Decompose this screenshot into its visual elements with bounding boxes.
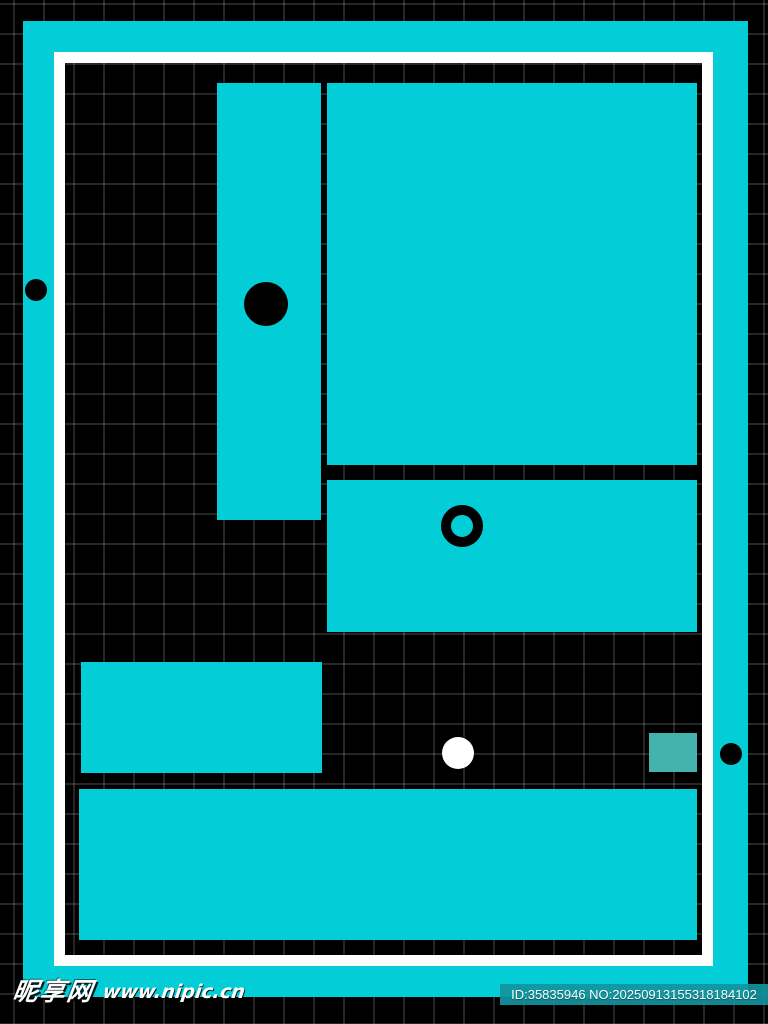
image-id-bar: ID:35835946 NO:20250913155318184102	[500, 984, 768, 1005]
artboard: 昵享网 www.nipic.cn ID:35835946 NO:20250913…	[0, 0, 768, 1024]
mid-rect	[327, 480, 697, 632]
bottom-wide-rect	[79, 789, 697, 940]
right-edge-black-dot	[720, 743, 742, 765]
watermark-site-url: www.nipic.cn	[101, 983, 246, 1004]
teal-square	[649, 733, 697, 772]
watermark: 昵享网 www.nipic.cn	[11, 979, 247, 1004]
black-dot-on-tall-rect	[244, 282, 288, 326]
black-ring-on-mid-rect	[441, 505, 483, 547]
watermark-site-name: 昵享网	[11, 979, 96, 1004]
left-edge-black-dot	[25, 279, 47, 301]
white-dot	[442, 737, 474, 769]
small-left-rect	[81, 662, 322, 773]
big-rect	[327, 83, 697, 465]
